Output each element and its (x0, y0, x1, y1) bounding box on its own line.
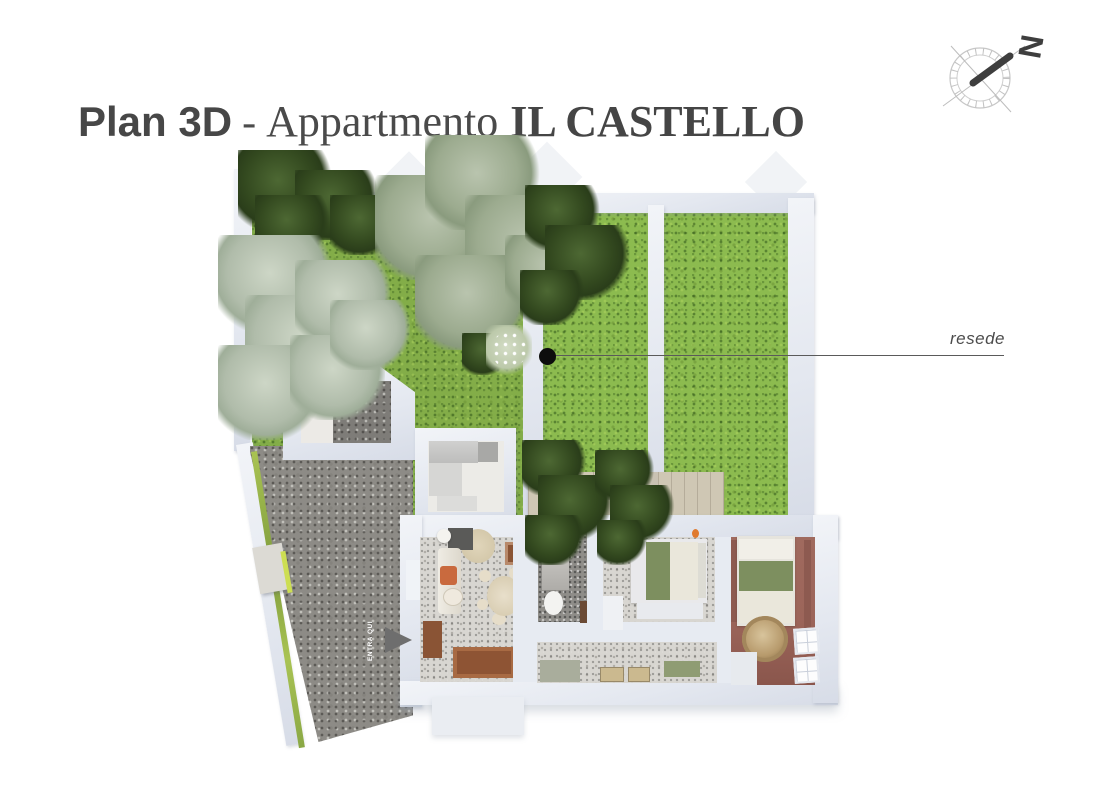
bedroom-right-window (793, 627, 820, 655)
kitchen-cabinet (429, 441, 478, 463)
boundary-wall-right (788, 198, 814, 518)
side-table (443, 588, 463, 606)
entrance-arrow-icon (385, 627, 412, 653)
bedroom-right-platform (731, 652, 757, 685)
bed-middle-pillow (698, 543, 706, 598)
kitchen-cabinet (429, 463, 462, 496)
tree-canopy-blob (525, 515, 585, 565)
living-window (406, 560, 420, 600)
dining-chair (477, 599, 488, 610)
coffee-table (453, 647, 515, 678)
floor-lamp (437, 529, 451, 543)
bedroom-right-wall-accent (804, 540, 811, 632)
bed-bench (637, 603, 703, 619)
garden-marker-dot (539, 348, 556, 365)
media-unit (448, 528, 473, 550)
wardrobe (603, 596, 623, 630)
corridor-green-mat (664, 661, 700, 677)
bed-right-blanket (739, 561, 793, 591)
door-mat (600, 667, 624, 682)
flowering-bush (486, 325, 532, 375)
kitchen-cabinet (437, 496, 477, 511)
bed-middle-blanket (646, 542, 670, 600)
leader-line (554, 355, 1004, 356)
bed-middle-duvet (670, 542, 698, 600)
floor-plan (0, 0, 1095, 793)
bathroom-door (580, 601, 587, 623)
page: Plan 3D-AppartmentoIL CASTELLO N (0, 0, 1095, 793)
door-mat (628, 667, 650, 682)
corridor-inset-mat (540, 660, 580, 682)
tree-canopy-blob (520, 270, 585, 325)
bidet (544, 591, 563, 615)
bedside-lamp (692, 529, 699, 538)
house-wall-left (400, 515, 422, 707)
entry-step (432, 697, 524, 735)
kitchen-cabinet (478, 442, 498, 462)
dining-chair (479, 570, 491, 582)
entrance-label: ENTRA QUI (367, 615, 379, 661)
bedroom-right-window (793, 656, 820, 684)
sideboard (423, 621, 442, 658)
sofa-cushion (440, 566, 457, 585)
bed-right-pillows (739, 539, 793, 559)
garden-label: resede (925, 329, 1005, 349)
tree-canopy-blob (597, 520, 647, 565)
tree-canopy-blob (330, 300, 410, 370)
partition-bedroom-bedroom (715, 537, 731, 683)
partition-corridor (536, 620, 717, 644)
